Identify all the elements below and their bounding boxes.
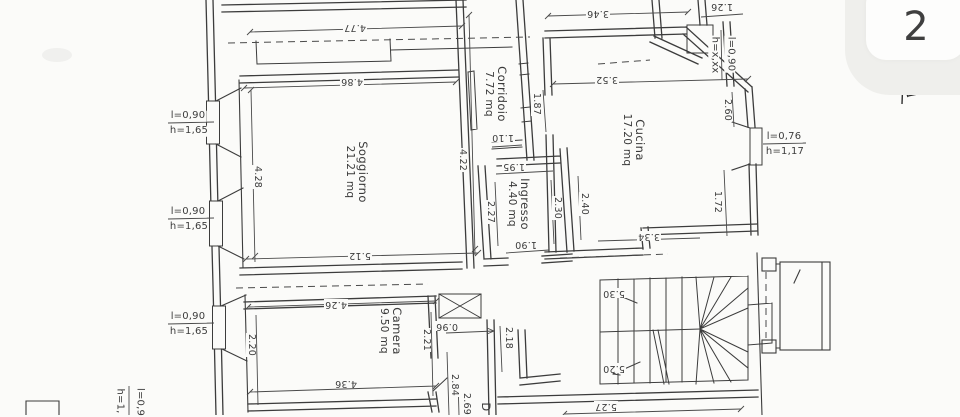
window-right-width: l=0,76	[766, 132, 803, 143]
room-label-partial: D	[479, 402, 493, 411]
dim-5-30: 5.30	[602, 288, 626, 298]
room-label-cucina: Cucina 17.20 mq	[621, 114, 647, 167]
room-area: 4.40 mq	[506, 178, 518, 230]
dim-5-20: 5.20	[602, 363, 626, 373]
floor-plan-page: Soggiorno 21.21 mq Corridoio 7.72 mq Cuc…	[0, 0, 960, 415]
dim-1-87: 1.87	[531, 92, 541, 116]
dim-1-95: 1.95	[502, 161, 526, 171]
window-right-height: h=1,17	[765, 147, 805, 158]
dim-1-10: 1.10	[491, 132, 515, 142]
page-number-badge: 2	[866, 0, 960, 60]
dim-1-90: 1.90	[514, 239, 538, 249]
room-area: 7.72 mq	[483, 66, 495, 122]
dim-4-77: 4.77	[343, 22, 367, 32]
page-number: 2	[903, 0, 928, 50]
room-area: 17.20 mq	[621, 114, 633, 167]
dim-2-21: 2.21	[421, 328, 431, 352]
room-name: Corridoio	[495, 66, 509, 122]
room-name: Camera	[390, 307, 404, 355]
dim-2-84: 2.84	[449, 373, 459, 397]
dim-3-34: 3.34	[637, 231, 661, 241]
dim-4-28: 4.28	[252, 165, 262, 189]
dim-0-96: 0.96	[435, 321, 459, 331]
dimension-lines	[129, 9, 806, 415]
dim-2-20: 2.20	[246, 333, 256, 357]
window-left1-height: h=1,65	[169, 126, 209, 137]
dim-2-30: 2.30	[552, 196, 562, 220]
dim-4-86: 4.86	[340, 76, 364, 86]
room-area: 21.21 mq	[344, 141, 356, 203]
dim-5-27: 5.27	[594, 401, 618, 411]
dim-1-26: 1.26	[710, 1, 734, 11]
dim-4-36: 4.36	[334, 378, 358, 388]
window-left3-height: h=1,65	[169, 327, 209, 338]
floor-plan-drawing	[0, 0, 960, 415]
room-name: Ingresso	[518, 178, 532, 230]
window-top-width: l=0,90	[725, 36, 736, 73]
room-area: 9.50 mq	[378, 307, 390, 355]
window-bottom-width: l=0,9	[134, 387, 145, 417]
window-top-height: h=x,xx	[709, 36, 720, 75]
dim-5-12: 5.12	[348, 250, 372, 260]
window-left2-width: l=0,90	[170, 207, 207, 218]
room-name: Cucina	[633, 114, 647, 167]
dim-1-72: 1.72	[712, 190, 722, 214]
dim-2-60: 2.60	[722, 98, 732, 122]
room-label-corridoio: Corridoio 7.72 mq	[483, 66, 509, 122]
window-bottom-height: h=1,	[114, 387, 125, 414]
dim-2-40: 2.40	[579, 192, 589, 216]
room-label-camera: Camera 9.50 mq	[378, 307, 404, 355]
dim-2-27: 2.27	[485, 200, 495, 224]
room-name: Soggiorno	[356, 141, 370, 203]
dim-2-69: 2.69	[461, 392, 471, 416]
window-left1-width: l=0,90	[170, 111, 207, 122]
dim-4-26: 4.26	[324, 299, 348, 309]
window-left2-height: h=1,65	[169, 222, 209, 233]
dim-3-46: 3.46	[586, 8, 610, 18]
dim-2-18: 2.18	[503, 326, 513, 350]
room-label-soggiorno: Soggiorno 21.21 mq	[344, 141, 370, 203]
lift-balcony	[757, 253, 830, 415]
room-label-ingresso: Ingresso 4.40 mq	[506, 178, 532, 230]
dim-4-22: 4.22	[457, 148, 467, 172]
window-left3-width: l=0,90	[170, 312, 207, 323]
room-name: D	[479, 402, 493, 411]
dim-3-52: 3.52	[595, 74, 619, 84]
